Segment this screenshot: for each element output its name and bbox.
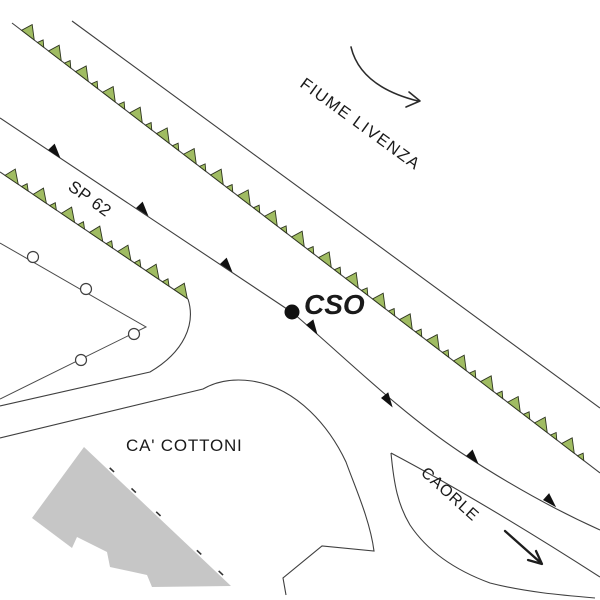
location-map: FIUME LIVENZA SP 62 CA' COTTONI CAORLE C… (0, 0, 600, 600)
label-ca-cottoni: CA' COTTONI (126, 436, 243, 455)
map-canvas: FIUME LIVENZA SP 62 CA' COTTONI CAORLE C… (0, 0, 600, 600)
station-marker-dot (285, 305, 300, 320)
label-station-code: CSO (304, 289, 365, 320)
